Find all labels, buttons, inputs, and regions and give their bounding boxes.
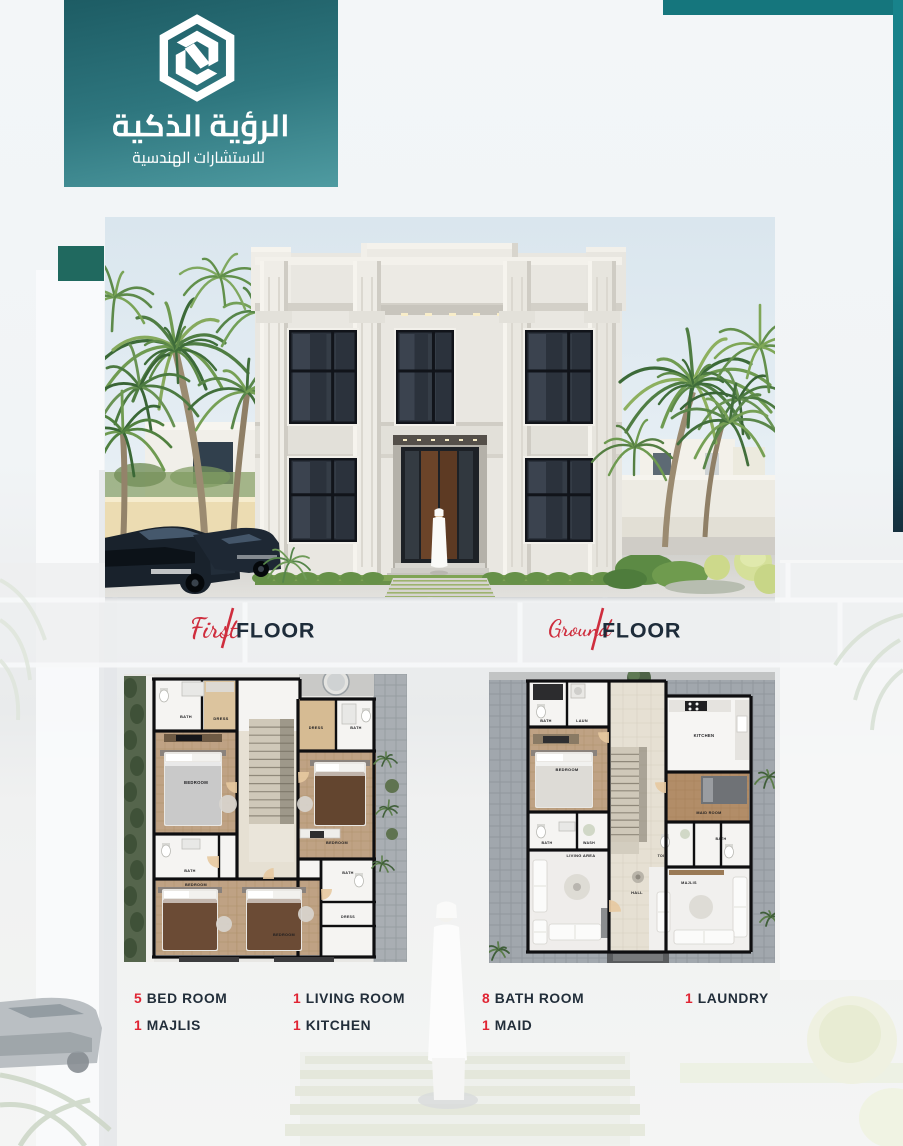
svg-text:BEDROOM: BEDROOM	[185, 883, 207, 887]
svg-text:WASH: WASH	[583, 841, 595, 845]
svg-text:BEDROOM: BEDROOM	[326, 841, 348, 845]
svg-text:LIVING AREA: LIVING AREA	[567, 853, 596, 858]
svg-text:BATH: BATH	[542, 841, 553, 845]
svg-text:FLOOR: FLOOR	[236, 619, 315, 643]
svg-text:FLOOR: FLOOR	[602, 619, 681, 643]
svg-text:BATH: BATH	[180, 714, 192, 719]
svg-text:KITCHEN: KITCHEN	[694, 733, 715, 738]
svg-text:TOI: TOI	[658, 854, 665, 858]
svg-text:BEDROOM: BEDROOM	[273, 933, 295, 937]
svg-text:MAID ROOM: MAID ROOM	[696, 811, 721, 815]
svg-text:HALL: HALL	[631, 890, 643, 895]
svg-text:DRESS: DRESS	[213, 716, 228, 721]
svg-text:LAUN: LAUN	[576, 719, 588, 723]
svg-text:BATH: BATH	[540, 719, 551, 723]
svg-text:BATH: BATH	[184, 869, 195, 873]
svg-text:BEDROOM: BEDROOM	[556, 767, 579, 772]
svg-text:BEDROOM: BEDROOM	[184, 780, 208, 785]
svg-text:MAJLIS: MAJLIS	[681, 881, 697, 885]
svg-text:BATH: BATH	[342, 871, 353, 875]
svg-text:DRESS: DRESS	[341, 915, 355, 919]
svg-text:DRESS: DRESS	[309, 726, 324, 730]
svg-text:BATH: BATH	[350, 726, 361, 730]
